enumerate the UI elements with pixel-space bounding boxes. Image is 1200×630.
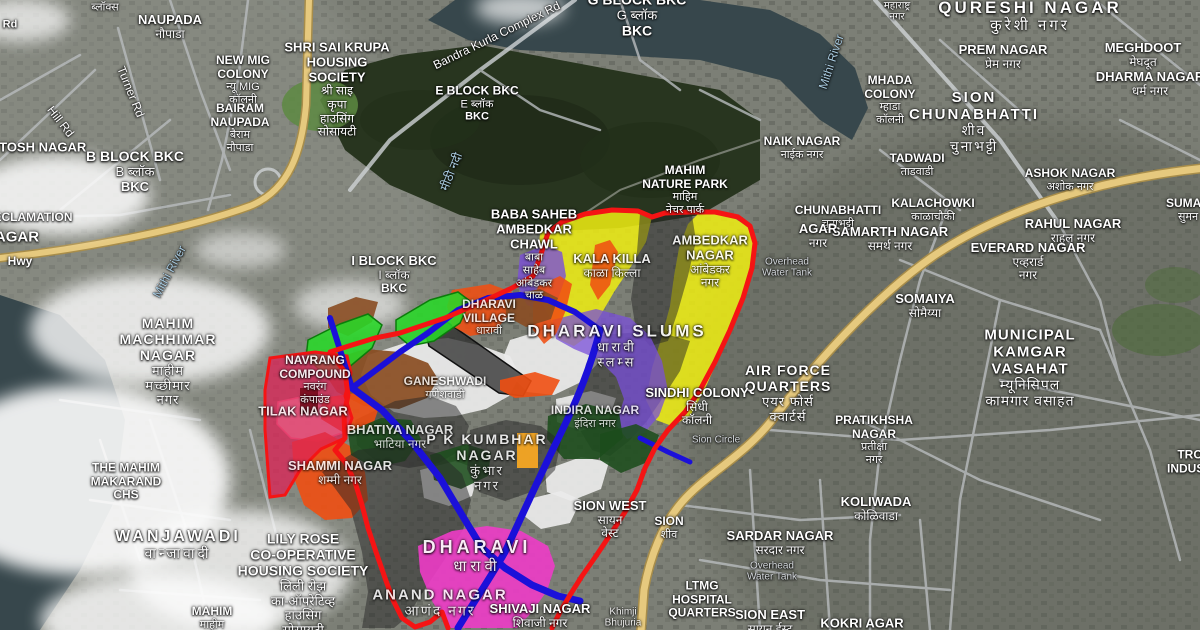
map-label: AGAR (0, 228, 39, 245)
map-label: AGARनगर (799, 222, 837, 250)
map-label: DHARAVI SLUMSधारावीस्लम्स (527, 322, 706, 371)
map-label: DHARAVIVILLAGEधारावी (462, 298, 516, 338)
map-label: MAHIMMACHHIMARNAGARमाहीममच्छीमारनगर (120, 316, 217, 408)
map-label: SHIVAJI NAGARशिवाजी नगर (490, 602, 591, 630)
map-label: G BLOCK BKCG ब्लॉकBKC (588, 0, 687, 39)
map-label: DHARAVIधारावी (423, 537, 532, 575)
map-label: SOMAIYAसोमैय्या (895, 292, 954, 320)
map-label: SAMARTH NAGARसमर्थ नगर (832, 225, 948, 253)
map-label: OverheadWater Tank (762, 257, 812, 280)
map-label: महाराष्ट्रनगर (884, 1, 910, 24)
map-label: QURESHI NAGARकुरेशी नगर (938, 0, 1122, 34)
map-label: मीठी नदी (438, 151, 466, 193)
map-label: THE MAHIMMAKARANDCHS (91, 461, 162, 502)
map-label: NTOSH NAGAR (0, 141, 86, 156)
map-label: SINDHI COLONYसिंधीकॉलनी (645, 386, 748, 428)
map-label: SIONCHUNABHATTIशीवचुनाभट्टी (909, 89, 1039, 155)
map-label: Mithi River (817, 33, 848, 91)
map-label: KhimjiBhujuria (605, 607, 642, 630)
map-label: NAVRANGCOMPOUNDनवरंगकंपाउंड (279, 354, 350, 406)
map-label: WANJAWADIवान्जावादी (115, 528, 241, 562)
map-label: ब्लॉक्स (91, 2, 119, 15)
map-label: NAIK NAGARनाईक नगर (764, 135, 841, 161)
map-label: Mithi River (151, 244, 190, 300)
map-label: Hill Rd (44, 104, 77, 140)
map-label: P K KUMBHARNAGARकुंभारनगर (426, 432, 547, 494)
map-label: MHADACOLONYम्हाडाकॉलनी (864, 74, 915, 126)
map-label: EVERARD NAGARएव्हरार्डनगर (971, 241, 1086, 283)
map-label: SION EASTसायन ईस्ट (735, 608, 805, 630)
map-label: MUNICIPALKAMGARVASAHATम्यूनिसिपलकामगार व… (984, 326, 1075, 409)
map-label: B BLOCK BKCB ब्लॉकBKC (86, 149, 184, 195)
map-label: RAHUL NAGARराहुल नगर (1025, 217, 1122, 245)
map-label: MAHIMNATURE PARKमाहिमनेचर पार्क (642, 164, 728, 216)
map-label: BAIRAMNAUPADAबैरामनौपाडा (210, 102, 269, 154)
map-label: MEGHDOOTमेघदूत (1105, 41, 1182, 69)
satellite-map[interactable]: ब्लॉक्सNAUPADAनौपाडाNEW MIGCOLONYन्यू MI… (0, 0, 1200, 630)
map-label: ASHOK NAGARअशोक नगर (1025, 167, 1116, 193)
map-label: KOKRI AGAR (820, 617, 903, 630)
map-label: ANAND NAGARआणंद नगर (372, 586, 507, 619)
map-label: TROINDUSR (1167, 448, 1200, 475)
map-label: NEW MIGCOLONYन्यू MIGकॉलनी (216, 54, 270, 106)
map-label: LTMGHOSPITALQUARTERS (668, 579, 735, 620)
map-labels-layer: ब्लॉक्सNAUPADAनौपाडाNEW MIGCOLONYन्यू MI… (0, 0, 1200, 630)
map-label: PREM NAGARप्रेम नगर (959, 43, 1048, 71)
map-label: SHRI SAI KRUPAHOUSINGSOCIETYश्री साइकृपा… (284, 40, 389, 139)
map-label: PRATIKHSHANAGARप्रतीक्षानगर (835, 414, 913, 466)
map-label: OverheadWater Tank (747, 561, 797, 584)
map-label: BHATIYA NAGARभाटिया नगर (347, 423, 453, 451)
map-label: SIONशीव (654, 515, 683, 541)
map-label: SUMANसुमन (1166, 197, 1200, 223)
map-label: SHAMMI NAGARशम्मी नगर (288, 459, 392, 487)
map-label: TILAK NAGAR (258, 405, 348, 420)
map-label: E BLOCK BKCE ब्लॉकBKC (435, 85, 518, 124)
map-label: NAUPADAनौपाडा (138, 13, 202, 41)
map-label: CHUNABHATTIचुनाभट्टी (795, 204, 881, 230)
map-label: ECLAMATION (0, 211, 73, 225)
map-label: GANESHWADIगणेशवाडी (404, 375, 487, 401)
map-label: Hwy (8, 255, 33, 269)
map-label: MAHIMमाहीम (192, 605, 233, 630)
map-label: BABA SAHEBAMBEDKARCHAWLबाबासाहेबआंबेडकरच… (491, 208, 577, 303)
map-label: DHARMA NAGARधर्म नगर (1096, 70, 1200, 98)
map-label: AMBEDKARNAGARआंबेडकरनगर (672, 234, 748, 291)
map-label: Sion Circle (692, 434, 740, 445)
map-label: Bandra Kurla Complex Rd (431, 0, 562, 73)
map-label: AIR FORCEQUARTERSएयर फोर्सक्वार्टर्स (745, 363, 832, 425)
map-label: SION WESTसायनवेस्ट (574, 499, 647, 541)
map-label: SARDAR NAGARसरदार नगर (727, 529, 834, 557)
map-label: Rd (3, 19, 18, 32)
map-label: TADWADIताडवाडी (889, 152, 944, 178)
map-label: LILY ROSECO-OPERATIVEHOUSING SOCIETYलिली… (238, 531, 369, 630)
map-label: I BLOCK BKCI ब्लॉकBKC (351, 254, 436, 296)
map-label: KALACHOWKIकाळाचौकी (891, 197, 974, 223)
map-label: KOLIWADAकोळिवाडा (841, 495, 912, 523)
map-label: INDIRA NAGARइंदिरा नगर (551, 404, 639, 430)
map-label: KALA KILLAकाळा किल्ला (573, 252, 651, 280)
map-label: Turner Rd (114, 65, 147, 120)
